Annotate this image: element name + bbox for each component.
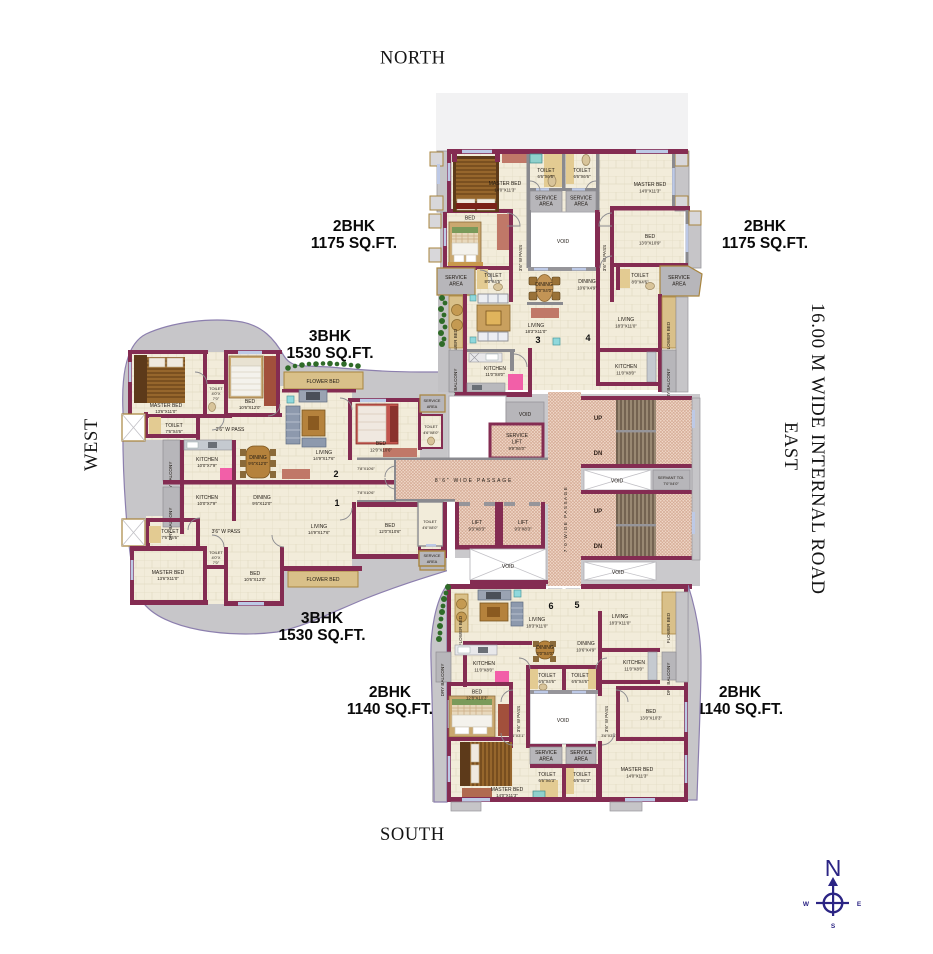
svg-text:13'0"X10'9": 13'0"X10'9" (639, 241, 661, 246)
svg-text:10'6"X12'0": 10'6"X12'0" (244, 577, 266, 582)
svg-text:1530 SQ.FT.: 1530 SQ.FT. (278, 627, 365, 644)
svg-text:2: 2 (333, 469, 338, 479)
svg-text:MASTER BED: MASTER BED (621, 767, 654, 773)
svg-text:10'6"X4'9": 10'6"X4'9" (576, 648, 596, 653)
svg-text:18'3"X11'0": 18'3"X11'0" (615, 324, 637, 329)
svg-text:18'3"X11'0": 18'3"X11'0" (525, 329, 547, 334)
svg-text:9'6"X12'0": 9'6"X12'0" (252, 501, 272, 506)
svg-text:6: 6 (548, 601, 553, 611)
svg-text:7'0": 7'0" (213, 396, 220, 401)
svg-text:2BHK: 2BHK (719, 684, 762, 701)
svg-text:9'6"X12'0": 9'6"X12'0" (248, 461, 268, 466)
svg-text:SERVANT TOI.: SERVANT TOI. (658, 475, 684, 480)
svg-text:10'6"X12'0": 10'6"X12'0" (239, 405, 261, 410)
svg-text:7'8"X10'6": 7'8"X10'6" (357, 490, 375, 495)
svg-text:2'0"X4'0": 2'0"X4'0" (536, 651, 554, 656)
svg-text:11'0"X8'0": 11'0"X8'0" (474, 668, 494, 673)
svg-text:NORTH: NORTH (380, 49, 446, 69)
svg-text:SERVICE: SERVICE (445, 275, 468, 281)
svg-text:LIVING: LIVING (529, 617, 546, 623)
svg-text:13'6"X11'0": 13'6"X11'0" (155, 409, 177, 414)
svg-text:14'0"X11'3": 14'0"X11'3" (626, 774, 648, 779)
svg-text:7'0"X4'0": 7'0"X4'0" (663, 481, 679, 486)
svg-text:VOID: VOID (557, 239, 570, 245)
svg-text:5: 5 (574, 600, 579, 610)
svg-text:DINING: DINING (577, 641, 595, 647)
svg-text:SERVICE: SERVICE (423, 398, 440, 403)
svg-text:SERVICE: SERVICE (570, 750, 593, 756)
svg-text:1530 SQ.FT.: 1530 SQ.FT. (286, 345, 373, 362)
svg-text:6'6"X6'3": 6'6"X6'3" (573, 778, 591, 783)
svg-text:AREA: AREA (574, 202, 588, 208)
svg-text:3'6" W PASS: 3'6" W PASS (216, 427, 245, 433)
svg-text:12'0"X10'6": 12'0"X10'6" (370, 448, 392, 453)
svg-text:2BHK: 2BHK (333, 218, 376, 235)
svg-text:SERVICE: SERVICE (423, 553, 440, 558)
svg-text:1140 SQ.FT.: 1140 SQ.FT. (347, 701, 433, 718)
svg-text:LIVING: LIVING (612, 614, 629, 620)
svg-text:FLOWER BED: FLOWER BED (666, 612, 671, 643)
svg-text:8'0"X4'6": 8'0"X4'6" (631, 280, 649, 285)
svg-text:1175 SQ.FT.: 1175 SQ.FT. (311, 235, 397, 252)
svg-text:VOID: VOID (611, 479, 624, 485)
svg-text:3BHK: 3BHK (301, 610, 344, 627)
svg-text:6'6"X6'3": 6'6"X6'3" (538, 778, 556, 783)
svg-text:TOILET: TOILET (631, 273, 648, 279)
svg-text:11'0"X8'0": 11'0"X8'0" (616, 371, 636, 376)
svg-text:KITCHEN: KITCHEN (615, 364, 637, 370)
svg-text:1140 SQ.FT.: 1140 SQ.FT. (697, 701, 783, 718)
svg-text:2'0"X4'0": 2'0"X4'0" (535, 288, 553, 293)
svg-text:FLOWER BED: FLOWER BED (666, 321, 671, 352)
svg-text:10'0"X7'9": 10'0"X7'9" (197, 463, 217, 468)
svg-text:VOID: VOID (557, 718, 570, 724)
svg-text:3'6" W PASS: 3'6" W PASS (602, 245, 607, 271)
svg-text:TOILET: TOILET (424, 424, 438, 429)
svg-text:3'6" W PASS: 3'6" W PASS (212, 529, 241, 535)
svg-text:AREA: AREA (574, 757, 588, 763)
svg-text:6'6"X6'6": 6'6"X6'6" (537, 174, 555, 179)
svg-text:3: 3 (535, 335, 540, 345)
svg-text:13'6"X11'0": 13'6"X11'0" (157, 576, 179, 581)
svg-text:4'6"X8'0": 4'6"X8'0" (423, 430, 439, 435)
svg-text:AREA: AREA (539, 757, 553, 763)
svg-text:S: S (831, 923, 836, 930)
svg-text:DINING: DINING (578, 279, 596, 285)
svg-text:2BHK: 2BHK (369, 684, 412, 701)
svg-text:AREA: AREA (539, 202, 553, 208)
svg-text:14'9"X17'6": 14'9"X17'6" (308, 530, 330, 535)
svg-text:AREA: AREA (672, 282, 686, 288)
svg-text:SERVICE: SERVICE (535, 750, 558, 756)
svg-text:BED: BED (376, 441, 387, 447)
svg-text:6'6"X4'6": 6'6"X4'6" (538, 679, 556, 684)
svg-text:AREA: AREA (427, 559, 438, 564)
svg-text:UP: UP (594, 416, 602, 422)
svg-text:LIFT: LIFT (472, 520, 482, 526)
svg-text:7'6"X4'6": 7'6"X4'6" (161, 535, 179, 540)
svg-text:AREA: AREA (449, 282, 463, 288)
svg-text:3BHK: 3BHK (309, 328, 352, 345)
svg-text:TOILET: TOILET (423, 519, 437, 524)
svg-text:7'0"WIDE PASSAGE: 7'0"WIDE PASSAGE (563, 486, 568, 553)
svg-text:BED: BED (465, 216, 476, 222)
svg-text:10'0"X7'9": 10'0"X7'9" (197, 501, 217, 506)
svg-text:14'9"X17'6": 14'9"X17'6" (313, 456, 335, 461)
svg-text:VOID: VOID (502, 564, 515, 570)
svg-text:KITCHEN: KITCHEN (473, 661, 495, 667)
svg-text:UP: UP (594, 509, 602, 515)
svg-text:14'0"X11'3": 14'0"X11'3" (639, 189, 661, 194)
svg-text:4: 4 (585, 333, 590, 343)
svg-text:LIVING: LIVING (618, 317, 635, 323)
svg-text:DN: DN (594, 451, 603, 457)
svg-text:3'6" W PASS: 3'6" W PASS (516, 706, 521, 732)
svg-text:3'6" W PASS: 3'6" W PASS (518, 245, 523, 271)
svg-text:3'6"X3'1": 3'6"X3'1" (601, 733, 617, 738)
svg-text:7'6"X4'6": 7'6"X4'6" (165, 429, 183, 434)
svg-text:11'0"X8'0": 11'0"X8'0" (624, 667, 644, 672)
svg-text:3'6" W PASS: 3'6" W PASS (604, 706, 609, 732)
svg-text:BED: BED (646, 709, 657, 715)
svg-text:2BHK: 2BHK (744, 218, 787, 235)
svg-text:SERVICE: SERVICE (668, 275, 691, 281)
svg-text:6'6"X6'6": 6'6"X6'6" (573, 174, 591, 179)
svg-text:FLOWER BED: FLOWER BED (306, 379, 339, 385)
svg-text:18'3"X11'0": 18'3"X11'0" (526, 624, 548, 629)
svg-text:DRY BALCONY: DRY BALCONY (440, 664, 445, 697)
svg-text:AREA: AREA (427, 404, 438, 409)
svg-text:FLOWER BED: FLOWER BED (306, 577, 339, 583)
svg-text:9'3"X8'3": 9'3"X8'3" (514, 527, 532, 532)
svg-text:MASTER BED: MASTER BED (634, 182, 667, 188)
svg-text:12'8"X10'3": 12'8"X10'3" (466, 696, 488, 701)
svg-text:W: W (803, 901, 810, 908)
svg-text:9'9"X6'0": 9'9"X6'0" (508, 446, 526, 451)
svg-text:WEST: WEST (82, 418, 102, 471)
svg-text:FLOWER BED: FLOWER BED (458, 615, 463, 646)
svg-text:SERVICE: SERVICE (506, 433, 529, 439)
svg-text:13'0"X10'3": 13'0"X10'3" (640, 716, 662, 721)
svg-text:1175 SQ.FT.: 1175 SQ.FT. (722, 235, 808, 252)
svg-text:E: E (857, 901, 862, 908)
svg-text:LIFT: LIFT (518, 520, 528, 526)
svg-text:8'6" WIDE PASSAGE: 8'6" WIDE PASSAGE (435, 478, 513, 484)
svg-text:7'8"X10'6": 7'8"X10'6" (357, 466, 375, 471)
svg-text:DRY BALCONY: DRY BALCONY (666, 663, 671, 696)
svg-text:11'0"X8'0": 11'0"X8'0" (485, 372, 505, 377)
svg-text:18'3"X11'0": 18'3"X11'0" (609, 621, 631, 626)
svg-text:4'6"X8'0": 4'6"X8'0" (422, 525, 438, 530)
svg-text:LIFT: LIFT (512, 440, 522, 446)
svg-text:12'0"X10'6": 12'0"X10'6" (379, 529, 401, 534)
svg-text:BED: BED (645, 234, 656, 240)
svg-text:VOID: VOID (519, 412, 532, 418)
svg-text:16.00 M WIDE INTERNAL ROAD: 16.00 M WIDE INTERNAL ROAD (807, 303, 828, 595)
svg-text:SOUTH: SOUTH (380, 825, 445, 845)
svg-text:DN: DN (594, 544, 603, 550)
svg-text:14'0"X11'3": 14'0"X11'3" (494, 188, 516, 193)
svg-text:10'6"X4'9": 10'6"X4'9" (577, 286, 597, 291)
svg-text:7'0": 7'0" (213, 560, 220, 565)
svg-text:VOID: VOID (612, 570, 625, 576)
svg-text:8'0"X4'5": 8'0"X4'5" (484, 279, 502, 284)
svg-text:MASTER BED: MASTER BED (489, 181, 522, 187)
svg-text:EAST: EAST (780, 422, 800, 471)
svg-text:KITCHEN: KITCHEN (623, 660, 645, 666)
svg-text:1: 1 (334, 498, 339, 508)
svg-text:9'3"X8'3": 9'3"X8'3" (468, 527, 486, 532)
svg-text:6'6"X4'6": 6'6"X4'6" (571, 679, 589, 684)
